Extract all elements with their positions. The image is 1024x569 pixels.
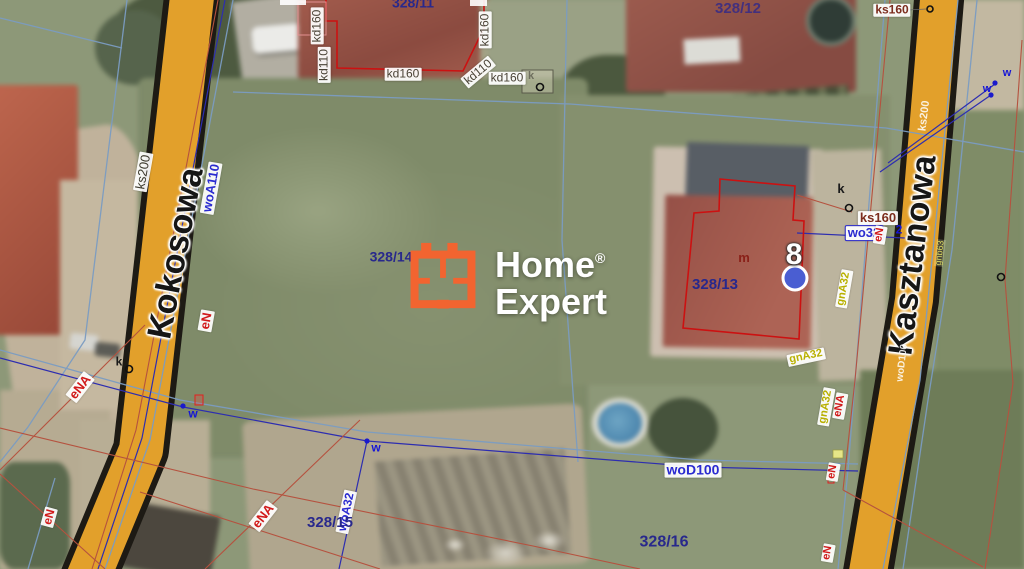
marker-label-k: k (528, 71, 534, 83)
utility-label-ks200: ks200 (133, 152, 153, 192)
utility-label-ena: eNA (248, 500, 277, 532)
marker-label-w: w (188, 408, 197, 421)
utility-label-kd160: kd160 (479, 12, 492, 49)
pin-number: 8 (786, 238, 803, 272)
satellite-cadastral-map: ks200woA110eNeNAeNeNAwoA32328/15328/16wo… (0, 0, 1024, 569)
utility-label-2: 2 (896, 224, 903, 237)
utility-label-woa110: woA110 (200, 161, 223, 215)
road-label-ks200: ks200 (917, 100, 932, 132)
utility-label-gna32: gnA32 (835, 269, 853, 308)
parcel-label-328-12: 328/12 (715, 1, 761, 17)
utility-label-m: m (738, 251, 750, 265)
parcel-label-328-15: 328/15 (307, 515, 353, 531)
utility-label-ks160: ks160 (873, 4, 910, 17)
utility-label-gna32: gnA32 (786, 347, 825, 366)
utility-label-ena: eNA (832, 392, 848, 420)
utility-label-kd160: kd160 (385, 68, 422, 81)
utility-label-kd110: kd110 (318, 47, 331, 83)
utility-label-wod100: woD100 (665, 463, 722, 478)
home-expert-watermark: Home® Expert (406, 240, 607, 320)
utility-label-en: eN (821, 543, 836, 563)
parcel-label-328-13: 328/13 (692, 277, 738, 293)
parcel-label-328-16: 328/16 (640, 535, 689, 552)
logo-line1: Home (495, 244, 595, 285)
utility-label-kd160: kd160 (311, 8, 324, 45)
home-expert-logo-text: Home® Expert (495, 240, 607, 320)
marker-label-w: w (1003, 68, 1012, 80)
parcel-label-328-11: 328/11 (392, 0, 434, 10)
road-label-gnb63: gnb63 (934, 239, 947, 267)
registered-mark: ® (595, 250, 605, 266)
logo-line2: Expert (495, 281, 607, 322)
home-expert-logo-icon (406, 240, 480, 310)
utility-label-en: eN (873, 225, 888, 245)
marker-label-w: w (371, 442, 380, 455)
utility-label-ks160: ks160 (858, 211, 898, 225)
marker-label-k: k (837, 182, 844, 196)
marker-label-k: k (116, 356, 123, 369)
marker-label-w: w (983, 84, 992, 96)
utility-label-en: eN (40, 506, 57, 528)
utility-label-en: eN (197, 310, 214, 333)
utility-label-en: eN (826, 462, 841, 482)
utility-label-ena: eNA (65, 371, 94, 403)
utility-label-kd160: kd160 (489, 72, 526, 85)
road-label-wod100: woD100 (895, 344, 910, 383)
